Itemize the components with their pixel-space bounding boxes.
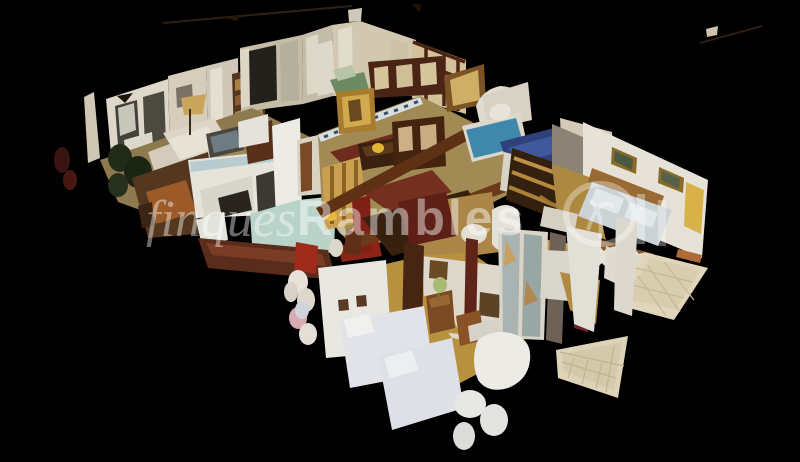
svg-text:finques: finques bbox=[146, 191, 296, 248]
svg-text:Rambles: Rambles bbox=[297, 190, 526, 246]
